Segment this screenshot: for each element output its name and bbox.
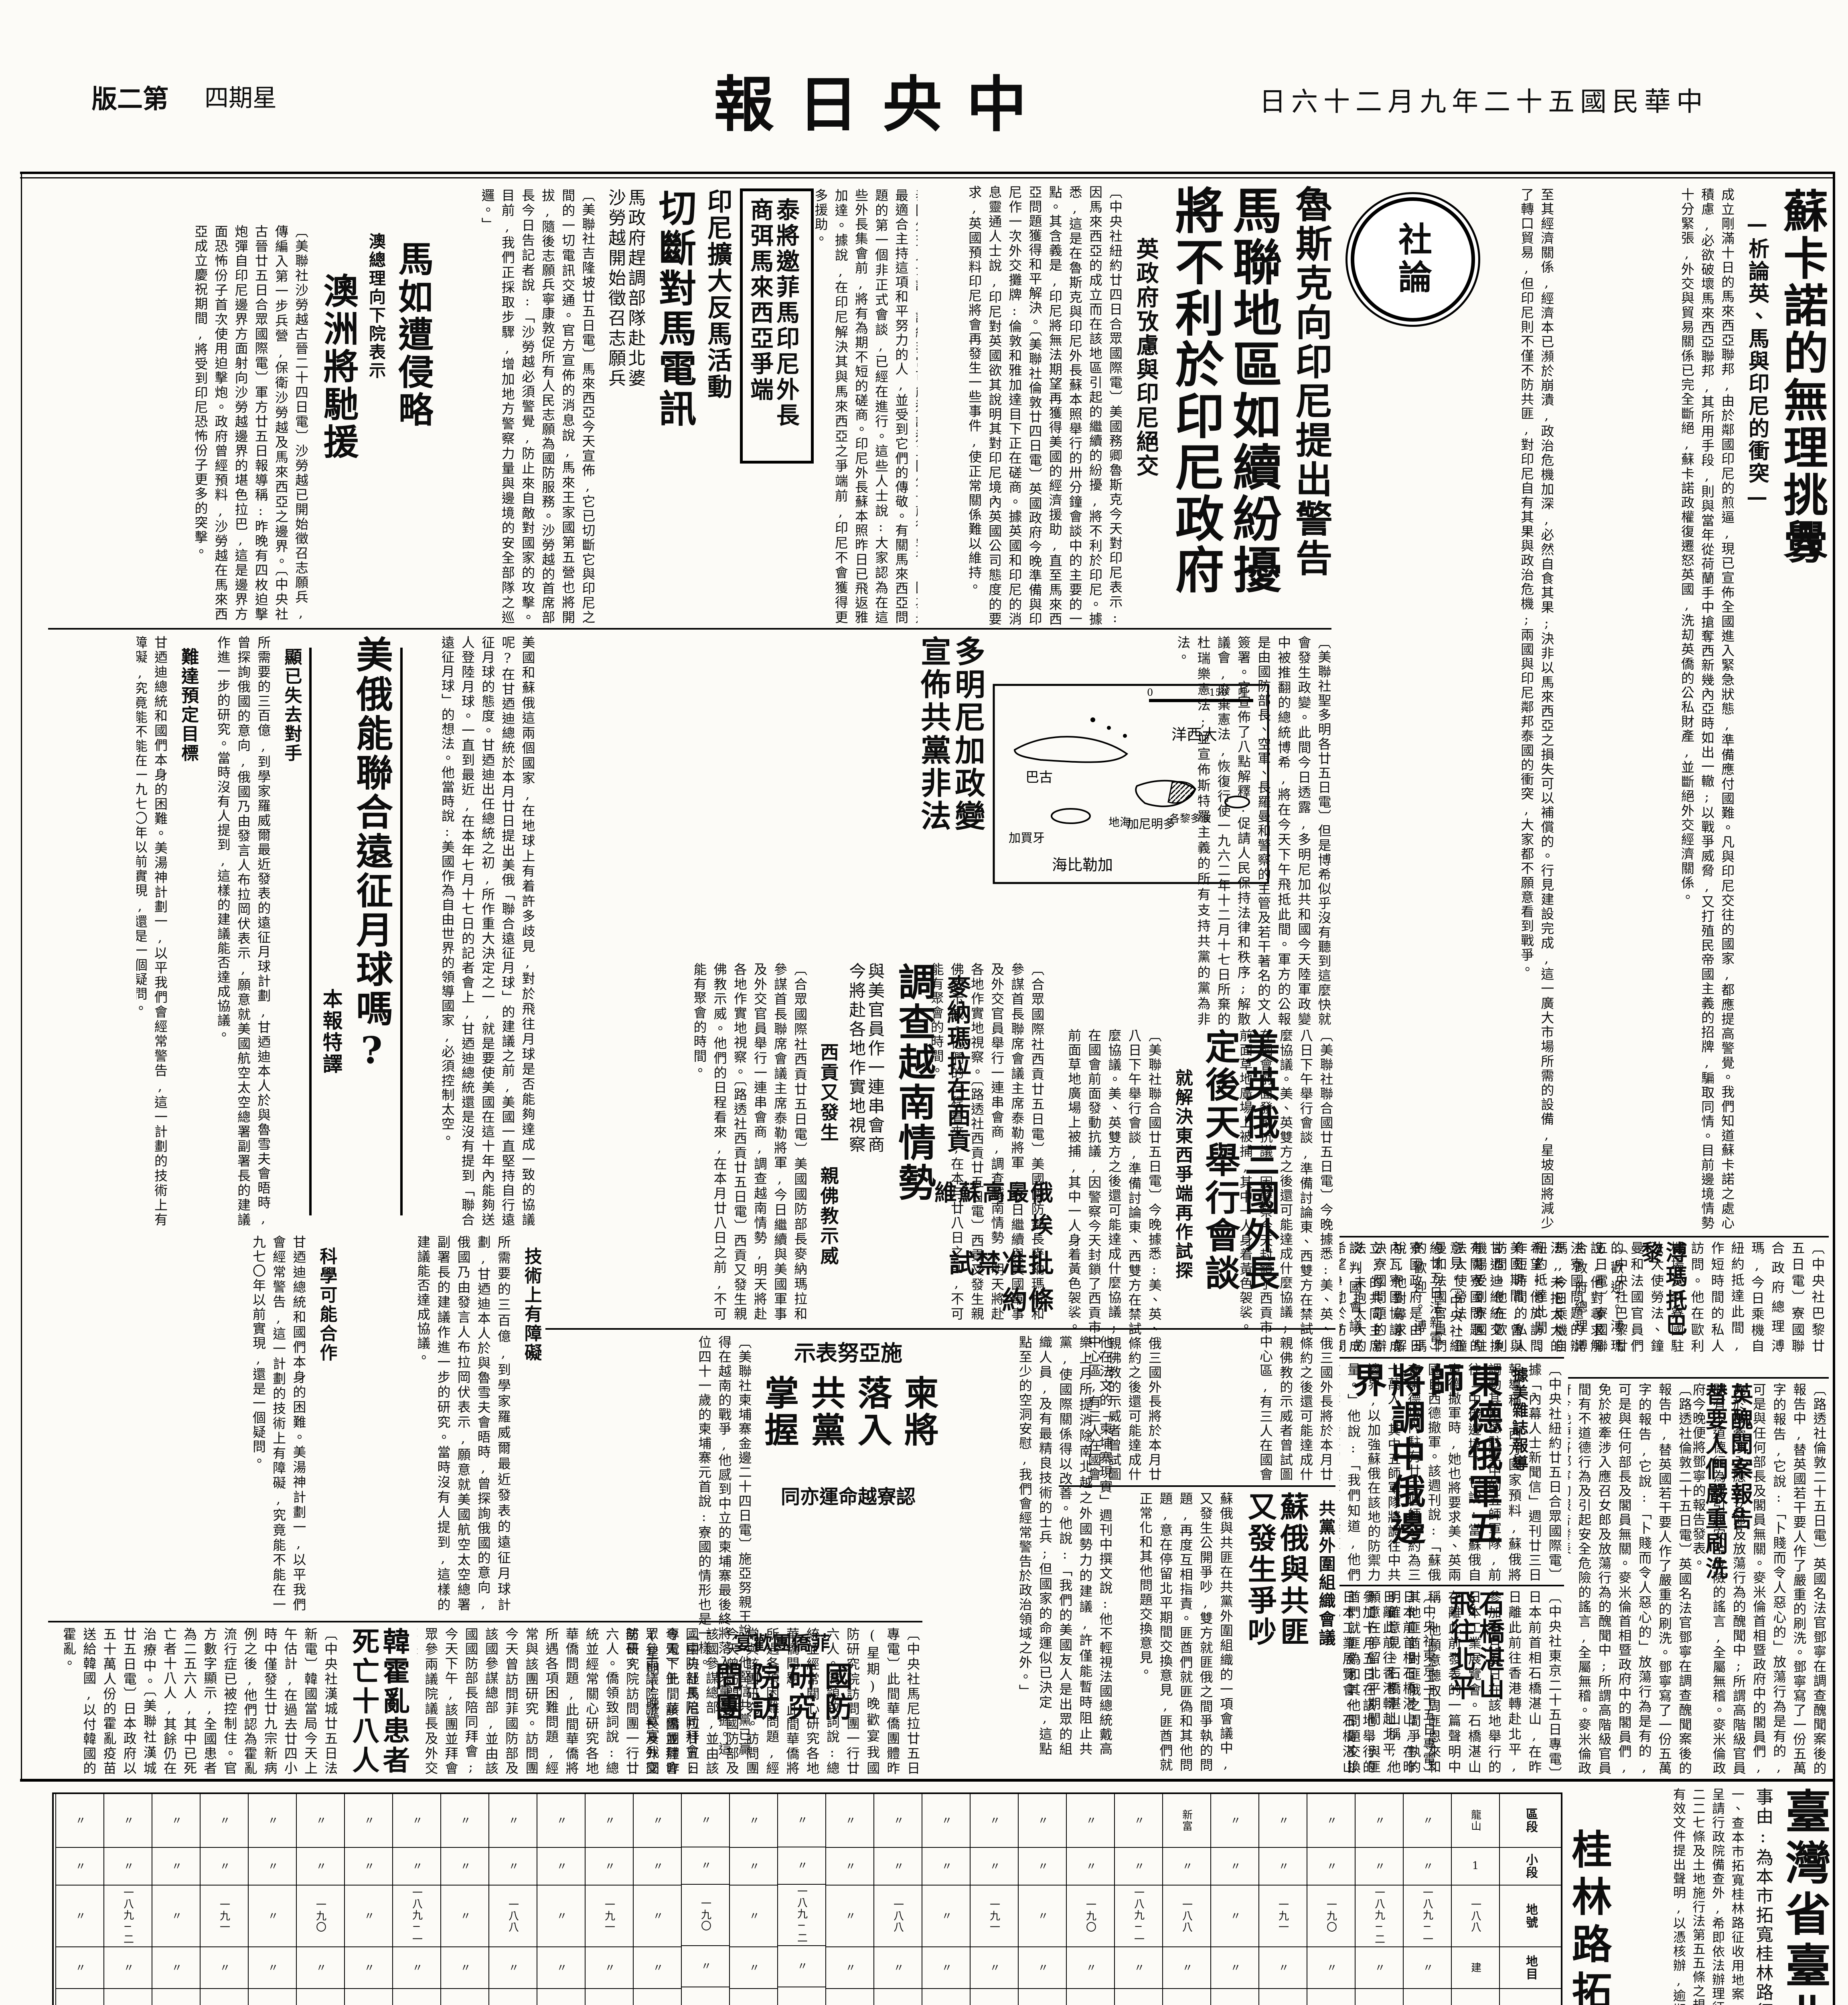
table-cell: 〃 (441, 1848, 488, 1886)
date-line: 中華民國五十二年九月二十六日 (1139, 80, 1708, 116)
table-cell: 〃 (1067, 1947, 1114, 1989)
table-cell: 〃 (634, 1794, 681, 1848)
table-cell: 〃 (489, 1947, 537, 1989)
table-cell: 〇・〇一九〇 (1259, 1989, 1307, 2005)
table-cell: 〇・〇〇二六 (1115, 1989, 1162, 2005)
table-cell: 〃 (778, 1987, 825, 2005)
table-cell: 〇・〇一九〇 (922, 1989, 970, 2005)
masthead-rule-top (20, 172, 1834, 174)
weekday-label: 星期四 (172, 79, 277, 115)
moon-subhead-2: 難達預定目標 (178, 636, 199, 1227)
table-cell: 〃 (152, 1794, 200, 1848)
article-eastger: 〔中央社紐約廿五日合眾國際電〕據「內幕人士新聞信」週刊廿三日報導稱,西方國家預料… (1339, 1363, 1564, 1582)
band-r-rule-4 (1568, 1377, 1829, 1379)
table-cell: 一八九─二 (104, 1886, 152, 1947)
table-cell: 〃 (537, 1794, 585, 1848)
article-aussie: 馬如遭侵略 澳總理向下院表示 澳洲將馳援 〔美聯社沙勞越古晉二十四日電〕沙勞越已… (48, 225, 433, 622)
table-cell: 〃 (1211, 1848, 1258, 1886)
land-table-title: 桂林路拓寬工程征收土地補償清冊 (1566, 1829, 1611, 2005)
table-cell: 〃 (489, 1848, 537, 1886)
table-cell: 〃 (971, 1848, 1018, 1886)
table-cell: 一八九─一 (1404, 1886, 1451, 1947)
table-cell: 〃 (297, 1989, 344, 2005)
moon-body-3: 甘迺迪總統和國們本身的困難。美湯神計劃一,以平我們會經常警告,這一計劃的技術上有… (136, 636, 170, 1227)
table-cell: 〃 (826, 1947, 873, 1989)
land-table-grid: 區段小段地號地目面積(甲)法定地價征收面積(公頃)折合坪數補償金額所有權人住址・… (52, 1792, 1562, 2005)
moon-subhead-3: 技術上有障礙 (521, 1235, 541, 1612)
table-cell: 〃 (104, 1794, 152, 1848)
table-cell: 〃 (874, 1848, 922, 1886)
table-cell: 一八九─一 (393, 1886, 440, 1947)
table-cell: 〇・〇〇三六 (1452, 1989, 1499, 2005)
article-phouma: 〔中央社巴黎廿五日電〕寮國聯合政府總理溥瑪,今日乘機自紐約抵達此間,作短時間的私… (1339, 1241, 1827, 1353)
editorial-badge-label: 社論 (1389, 222, 1437, 297)
sihanouk-subhead: 認寮越命運亦同 (781, 1481, 916, 1509)
map-label-dominican: 多明尼加 (1127, 817, 1175, 831)
moon-deco-rule-right (400, 648, 403, 1215)
eastger-body-lead: 〔中央社紐約廿五日合眾國際電〕據「內幕人士新聞信」週刊廿三日報導稱,西方國家預料… (1536, 1363, 1564, 1582)
table-cell: 〃 (730, 1848, 777, 1886)
table-cell: 〃 (1259, 1947, 1307, 1989)
band-r-rule-1 (1339, 1236, 1829, 1237)
rusk-headline: 魯斯克向印尼提出警告 (1290, 185, 1331, 626)
ministers-kicker: 就解決東西爭端再作試探 (1172, 1029, 1192, 1482)
table-record-column: 〃〃〃〃〇・〇〇八六一、九〇〇・〇〇〃〃一四、五二九・〇〇〃〃 (1018, 1794, 1066, 2005)
band-rule-1 (48, 628, 1331, 630)
table-record-column: 〃〃〃〃〇・〇〇三六〃〃〃六、〇〇八・三〇〃〃 (344, 1794, 392, 2005)
table-record-column: 〃〃〃〃〃〃〃〃〃〃〃 (1210, 1794, 1258, 2005)
band-r-rule-2 (1339, 1357, 1564, 1359)
article-moon-cont: 技術上有障礙 所需要的三百億,到學家羅威爾最近發表的遠征月球計劃,甘迺迪本人於與… (48, 1235, 541, 1612)
rusk-body: 〔中央社紐約廿四日合眾國際電〕美國務卿魯斯克今天對印尼表示:因馬來西亞的成立而在… (922, 185, 1125, 626)
article-sovtreaty: 俄最高蘇維埃 批准禁試條約 〔美聯社莫斯科廿五日電〕蘇俄最高蘇維埃今日批准部份禁… (934, 1175, 1055, 1321)
table-cell: 〃 (1211, 1794, 1258, 1848)
masthead-rule-bottom (20, 177, 1834, 178)
table-cell: 〃 (1067, 1848, 1114, 1886)
table-cell: 〃 (922, 1886, 970, 1947)
table-cell: 一八九─二 (778, 1885, 825, 1946)
table-record-column: 〃〃一八八〃〃二、五六〇・〇〇〇・〇〇〇四四二・一四七〃黃德桂林路二段 (873, 1794, 922, 2005)
table-cell: 〃 (1163, 1848, 1210, 1886)
table-record-column: 〃〃一九〇〃〃五六〇・〇〇〇・〇〇〇七八三・九〇〃童尾一九〇巷內 (296, 1794, 344, 2005)
article-editorial: 社論 蘇卡諾的無理挑釁 —析論英、馬與印尼的衝突— 成立剛滿十日的馬來西亞聯邦,… (1339, 188, 1827, 1230)
editorial-title: 蘇卡諾的無理挑釁 (1777, 188, 1827, 1230)
table-cell: 〃 (393, 1848, 440, 1886)
table-header-cell: 區段 (1500, 1794, 1561, 1848)
table-record-column: 〃〃〃〃〇・〇〇八六一、九〇〇・〇〇〃〃三、〇三〇・四〇〃〃 (152, 1794, 200, 2005)
table-cell: 〃 (393, 1794, 440, 1848)
table-header-column: 區段小段地號地目面積(甲)法定地價征收面積(公頃)折合坪數補償金額所有權人住址・… (1499, 1794, 1561, 2005)
table-cell: 〃 (104, 1848, 152, 1886)
aussie-headline-2: 澳洲將馳援 (319, 225, 359, 622)
left-edge-rule (21, 172, 22, 1780)
table-cell: 〃 (826, 1794, 873, 1848)
table-cell: 〃 (1356, 1947, 1403, 1989)
table-cell: 〃 (634, 1848, 681, 1886)
table-cell: 〃 (441, 1947, 488, 1989)
mcnamara-subheads: 與美官員作一連串會商 今將赴各地作實地視察 (847, 962, 885, 1321)
table-cell: 〃 (249, 1794, 296, 1848)
aussie-kicker: 澳總理向下院表示 (366, 225, 385, 622)
aussie-headline-1: 馬如遭侵略 (393, 225, 433, 622)
table-cell: 〃 (249, 1947, 296, 1989)
table-cell: 〃 (345, 1794, 392, 1848)
table-cell: 〃 (1356, 1848, 1403, 1886)
editorial-body: 成立剛滿十日的馬來西亞聯邦,由於鄰國印尼的煎逼,現已宣佈全國進入緊急狀態,準備應… (1564, 188, 1737, 1230)
table-cell: 〇・〇〇二六 (730, 1989, 777, 2005)
table-cell: 〇・〇〇八六 (634, 1989, 681, 2005)
ministers-body-lead: 〔美聯社聯合國廿五日電〕今晚據悉:美、英、俄三國外長將於本月廿八日下午舉行會談,… (1287, 1029, 1335, 1482)
table-cell: 〃 (345, 1848, 392, 1886)
table-cell: 〃 (1115, 1947, 1162, 1989)
moon-title: 美俄能聯合遠征月球嗎? (351, 636, 392, 1227)
article-thai-body: 泰國外交人士說:譚納非常可能邀請這三國外長前往曼谷,因為是最適合主持這項和平努力… (810, 188, 918, 625)
map-label-caribbean: 加勒比海 (1052, 856, 1113, 874)
table-cell: 〃 (971, 1989, 1018, 2005)
sovtreaty-headline-2: 批准禁試條約 (934, 1243, 1055, 1317)
mcnamara-subhead-2: 西貢又發生 親佛教示威 (818, 962, 839, 1321)
table-cell: 〃 (634, 1886, 681, 1947)
moon-cont-body: 所需要的三百億,到學家羅威爾最近發表的遠征月球計劃,甘迺迪本人於與魯雪夫會晤時,… (344, 1235, 513, 1612)
table-cell: 〃 (971, 1947, 1018, 1989)
table-cell: 〃 (297, 1794, 344, 1848)
table-cell: 〃 (297, 1947, 344, 1989)
indo-headline: 切斷對馬電訊 (653, 188, 695, 625)
moon-cont-body-2: 甘迺迪總統和國們本身的困難。美湯神計劃一,以平我們會經常警告,這一計劃的技術上有… (48, 1235, 308, 1612)
table-cell: 〃 (1019, 1794, 1066, 1848)
table-cell: 〃 (682, 1987, 729, 2005)
table-cell: 一八八 (874, 1886, 922, 1947)
table-cell: 〃 (152, 1886, 200, 1947)
table-cell: 〇・〇〇八六 (1356, 1989, 1403, 2005)
table-cell: 〃 (586, 1848, 633, 1886)
rusk-headline-main: 馬聯地區如續紛擾 將不利於印尼政府 (1167, 185, 1282, 626)
quarrel-body: 蘇俄與共匪在共黨外圍組織的一項會議中,又發生公開爭吵,雙方就匪俄之間爭執的問題,… (1059, 1492, 1235, 1772)
table-cell: 〃 (682, 1794, 729, 1847)
article-indo: 印尼擴大反馬活動 切斷對馬電訊 馬政府趕調部隊赴北婆 沙勞越開始徵召志願兵 〔美… (443, 188, 732, 625)
table-cell: 〃 (922, 1848, 970, 1886)
table-cell: 〇・〇〇八六 (1019, 1989, 1066, 2005)
table-cell: 〃 (1067, 1794, 1114, 1848)
table-record-column: 〃〃〃〃〇・〇一九〇〃〃〃三五、三〇二・四〇〃〃 (922, 1794, 970, 2005)
indo-body: 〔美聯社吉隆坡廿五日電〕馬來西亞今天宣佈,它已切斷它與印尼之間的一切電訊交通。官… (443, 188, 598, 625)
table-header-cell: 地目 (1500, 1947, 1561, 1989)
band-rule-4 (48, 1621, 922, 1622)
table-record-column: 〃〃一九一〃〇・〇一九〇二、五六〇・〇〇〃二・一四七六、〇〇八・三〇黃有信一九一… (1258, 1794, 1307, 2005)
moon-body: 美國和蘇俄這兩個國家,在地球上有着許多歧見,對於飛往月球是否能夠達成一致的協議呢… (411, 636, 538, 1227)
table-cell: 一九〇 (1307, 1886, 1355, 1947)
table-record-column: 〃〃一九一〃〃〃〇・〇〇〇四七八・三五〃黃德二三四號 (200, 1794, 248, 2005)
table-record-column: 新富〃一八八〃〇・〇〇三六〃〇・〇〇〇七八三・九〇六〇八・三〇黃宗獻一九〇巷內 (1162, 1794, 1210, 2005)
table-cell: 〃 (1404, 1947, 1451, 1989)
phouma-body-lead: 〔中央社巴黎廿五日電〕寮國聯合政府總理溥瑪,今日乘機自紐約抵達此間,作短時間的私… (1695, 1241, 1827, 1353)
table-cell: 〃 (1307, 1947, 1355, 1989)
table-cell: 〇・〇〇二六 (249, 1989, 296, 2005)
table-cell: 〃 (1115, 1794, 1162, 1848)
table-cell: 〃 (249, 1848, 296, 1886)
map-label-cuba: 古巴 (1025, 770, 1053, 786)
table-cell: 〃 (393, 1947, 440, 1989)
table-cell: 一九一 (1259, 1886, 1307, 1947)
table-cell: 〃 (1404, 1848, 1451, 1886)
table-cell: 一八九─一 (1115, 1886, 1162, 1947)
moon-subhead-1: 顯已失去對手 (281, 636, 302, 1227)
table-record-column: 〃〃一八九─二〃〃〃〇・〇〇〇七八三・九〇〃〃28.5坪房屋全部 (777, 1794, 825, 2005)
table-cell: 〃 (537, 1886, 585, 1947)
table-record-column: 〃〃〃〃〇・〇〇三六〃〃〃六、〇〇八・三〇〃〃 (825, 1794, 873, 2005)
sovtreaty-headline-1: 俄最高蘇維埃 (934, 1175, 1055, 1240)
table-cell: 〃 (682, 1946, 729, 1987)
table-cell: 〃 (586, 1947, 633, 1989)
rusk-subhead: 英政府攷慮與印尼絕交 (1133, 185, 1159, 626)
map-jamaica-shape (1052, 809, 1090, 823)
table-cell: 〃 (56, 1848, 103, 1886)
table-cell: 〃 (682, 1847, 729, 1885)
table-cell: 〃 (537, 1848, 585, 1886)
table-cell: 〃 (1356, 1794, 1403, 1848)
table-cell: 一八八 (1163, 1886, 1210, 1947)
table-cell: 〃 (922, 1794, 970, 1848)
table-record-column: 〃〃〃〃〇・〇〇二六五六〇・〇〇〃〃六〇八・三〇黃有信〃 (729, 1794, 777, 2005)
table-cell: 一八八 (1452, 1886, 1499, 1947)
table-cell: 〇・〇〇八六 (152, 1989, 200, 2005)
edition-label: 第二版 (48, 79, 168, 115)
table-cell: 〃 (1163, 1947, 1210, 1989)
table-cell: 一九〇 (297, 1886, 344, 1947)
table-cell: 〃 (922, 1947, 970, 1989)
table-cell: 〃 (393, 1989, 440, 2005)
table-record-column: 〃〃一九一〃〃〃〇・〇〇二七八一五・七九〃童尾萬大路四二號 (970, 1794, 1018, 2005)
table-record-column: 〃〃一九一〃〃一、九〇〇・〇〇〇・〇〇二七八八・三五〃黃宗獻中正路一七二號 (585, 1794, 633, 2005)
right-edge-rule (1833, 172, 1835, 2005)
table-cell: 〃 (1019, 1947, 1066, 1989)
article-scandal: 〔路透社倫敦二十五日電〕英國名法官鄧寧在調查醜聞案後的報告中,替英國若干要人作了… (1568, 1383, 1829, 1776)
table-cell: 龍山 (1452, 1794, 1499, 1848)
announcement-body: 一、查本市拓寬桂林路征收用地案,經呈奉臺灣省政府(52)8.9府民地丁字第五九七… (1636, 1788, 1747, 2005)
cholera-headline: 韓霍亂患者 死亡十八人 (348, 1627, 409, 1776)
table-cell: 〃 (1211, 1886, 1258, 1947)
table-cell: 〃 (1211, 1989, 1258, 2005)
table-cell: 〃 (152, 1848, 200, 1886)
table-cell: 〃 (249, 1886, 296, 1947)
table-cell: 〃 (1307, 1989, 1355, 2005)
scandal-body-lead: 〔路透社倫敦二十五日電〕英國名法官鄧寧在調查醜聞案後的報告中,替英國若干要人作了… (1761, 1383, 1829, 1776)
article-cholera: 韓霍亂患者 死亡十八人 〔中央社漢城廿五日法新電〕韓國當局今天上午估計,在過去廿… (48, 1627, 409, 1776)
thai-body: 泰國外交人士說:譚納非常可能邀請這三國外長前往曼谷,因為是最適合主持這項和平努力… (810, 188, 918, 625)
table-cell: 一九〇 (682, 1885, 729, 1946)
table-record-column: 龍山1一八八建〇・〇〇三六五六〇・〇〇〇・〇〇〇七八二・三六四七六〇八・三〇童尾… (1451, 1794, 1499, 2005)
table-record-column: 〃〃一八九─二〃〃〃〇・〇〇二七八一五・七九一四、五二九・〇〇黃有信萬大路四二號 (103, 1794, 152, 2005)
article-rusk: 魯斯克向印尼提出警告 馬聯地區如續紛擾 將不利於印尼政府 英政府攷慮與印尼絕交 … (922, 185, 1331, 626)
table-cell: 〃 (201, 1794, 248, 1848)
indo-subheads: 馬政府趕調部隊赴北婆 沙勞越開始徵召志願兵 (606, 188, 645, 625)
table-cell: 〇・〇一九〇 (56, 1989, 103, 2005)
table-record-column: 〃〃一八九─一〃〇・〇〇二六〃〇・〇〇〇四七三・九〇三、〇三〇・四〇〃〃 (1403, 1794, 1451, 2005)
table-cell: 一八九─二 (1356, 1886, 1403, 1947)
table-cell: 1 (1452, 1848, 1499, 1886)
table-cell: 〃 (586, 1989, 633, 2005)
table-cell: 〃 (441, 1886, 488, 1947)
table-cell: 〃 (1211, 1947, 1258, 1989)
land-table-title-block: 桂林路拓寬工程征收土地補償清冊 (1566, 1829, 1630, 2005)
table-cell: 〃 (730, 1794, 777, 1848)
table-record-column: 〃〃一九〇〃〃〃〇・〇〇〇四四一五・七九三五、三〇二・四〇〃〃 (1307, 1794, 1355, 2005)
newspaper-page: 第二版 星期四 中央日報 中華民國五十二年九月二十六日 社論 蘇卡諾的無理挑釁 … (0, 0, 1848, 2005)
table-cell: 〃 (586, 1794, 633, 1848)
table-header-cell: 小段 (1500, 1848, 1561, 1886)
table-cell: 新富 (1163, 1794, 1210, 1848)
table-cell: 〃 (826, 1848, 873, 1886)
announcement-subject: 事由:為本市拓寬桂林路征收用地案特此公告由。 (1753, 1788, 1773, 2005)
table-cell: 〃 (1019, 1848, 1066, 1886)
table-section-rule (20, 1779, 1834, 1782)
table-cell: 〃 (874, 1989, 922, 2005)
quarrel-headline: 蘇俄與共匪 又發生爭吵 (1243, 1492, 1308, 1772)
table-cell: 〇・〇〇二六 (1404, 1989, 1451, 2005)
table-record-column: 〃〃〃〃〇・〇〇二六〃〃〃六〇八・三〇〃〃 (248, 1794, 296, 2005)
table-record-column: 〃〃一八九─二〃〇・〇〇八六一、九〇〇・〇〇〇・〇〇二七八八・三五一四、五二九・… (1355, 1794, 1403, 2005)
table-cell: 〃 (537, 1989, 585, 2005)
announcement-title: 臺灣省臺北市政府公告 (1778, 1788, 1830, 2005)
moon-kicker: 本報特譯 (320, 636, 343, 1227)
thai-headline: 泰將邀菲馬印尼外長 商弭馬來西亞爭端 (747, 198, 799, 454)
table-cell: 〃 (730, 1886, 777, 1947)
table-cell: 〃 (1307, 1794, 1355, 1848)
table-cell: 〃 (1115, 1848, 1162, 1886)
cholera-body: 〔中央社漢城廿五日法新電〕韓國當局今天上午估計,在過去廿四小時中僅發生廿九宗新病… (48, 1627, 340, 1776)
table-cell: 一九一 (971, 1886, 1018, 1947)
quarrel-kicker: 共黨外圍組織會議 (1316, 1492, 1335, 1772)
table-record-column: 〃〃一八九─一〃〃〃〃二・一四七〃〃〃 (392, 1794, 440, 2005)
table-cell: 一九一 (201, 1886, 248, 1947)
paper-title: 中央日報 (682, 56, 1083, 132)
editorial-body-2: 至其經濟關係,經濟本已瀕於崩潰,政治危機加深,必然自食其果;決非以馬來西亞之損失… (1339, 188, 1556, 1230)
table-cell: 〃 (201, 1989, 248, 2005)
article-quarrel: 共黨外圍組織會議 蘇俄與共匪 又發生爭吵 蘇俄與共匪在共黨外圍組織的一項會議中,… (1059, 1492, 1335, 1772)
table-header-cell: 面積(甲) (1500, 1989, 1561, 2005)
table-cell: 〃 (778, 1847, 825, 1885)
band-rule-2 (545, 1328, 1335, 1330)
map-scale-zero: 0 (1147, 687, 1153, 698)
table-cell: 〃 (1019, 1886, 1066, 1947)
table-cell: 〃 (778, 1794, 825, 1847)
mcnamara-body: 〔合眾國際社西貢廿五日電〕美國國防部長麥納瑪拉和參謀首長聯席會議主席泰勒將軍,今… (541, 962, 810, 1321)
table-cell: 〃 (152, 1947, 200, 1989)
table-cell: 〃 (56, 1947, 103, 1989)
table-cell: 〃 (874, 1947, 922, 1989)
moon-body-2: 所需要的三百億,到學家羅威爾最近發表的遠征月球計劃,甘迺迪本人於與魯雪夫會晤時,… (206, 636, 273, 1227)
table-cell: 〃 (1259, 1848, 1307, 1886)
table-record-column: 〃〃〃〃〇・〇一九〇〃〃〃〃〃〃 (55, 1794, 103, 2005)
table-cell: 〃 (345, 1947, 392, 1989)
table-header-cell: 地號 (1500, 1886, 1561, 1947)
sihanouk-headline: 柬將 落入 共黨 掌握 (755, 1375, 941, 1471)
map-cuba-shape (1015, 737, 1127, 762)
table-cell: 〃 (730, 1947, 777, 1989)
band-rule-3 (1059, 1485, 1335, 1487)
announcement-block: 臺灣省臺北市政府公告 事由:為本市拓寬桂林路征收用地案特此公告由。 一、查本市拓… (1636, 1788, 1830, 2005)
editorial-badge: 社論 (1351, 197, 1475, 322)
article-phil: 〔中央社馬尼拉廿五日專電〕此間華僑團體昨(星期)晚歡宴我國防研究院訪問團一行廿六… (417, 1627, 922, 1776)
table-cell: 〃 (537, 1947, 585, 1989)
indo-kicker: 印尼擴大反馬活動 (703, 188, 732, 625)
table-cell: 〃 (1259, 1794, 1307, 1848)
table-cell: 〃 (441, 1989, 488, 2005)
ishibashi-body-lead: 〔中央社東京二十五日專電〕日本前首相石橋湛山,在昨日離此前往香港轉赴北平,參加十… (1512, 1590, 1564, 1774)
table-cell: 〃 (489, 1794, 537, 1848)
table-record-column: 〃〃一九〇〃〃〃〇・〇〇〇四七二・三六四七〃〃23.5坪房屋全部 (681, 1794, 729, 2005)
table-cell: 〃 (104, 1989, 152, 2005)
editorial-subtitle: —析論英、馬與印尼的衝突— (1745, 188, 1769, 1230)
table-cell: 建 (1452, 1947, 1499, 1989)
scandal-body: 〔路透社倫敦二十五日電〕英國名法官鄧寧在調查醜聞案後的報告中,替英國若干要人作了… (1568, 1383, 1694, 1776)
article-thai-headline-box: 泰將邀菲馬印尼外長 商弭馬來西亞爭端 (740, 188, 814, 464)
table-cell: 〇・〇〇三六 (345, 1989, 392, 2005)
table-cell: 〃 (971, 1794, 1018, 1848)
table-cell: 一九〇 (1067, 1886, 1114, 1947)
table-cell: 〃 (104, 1947, 152, 1989)
table-cell: 〇・〇一九〇 (489, 1989, 537, 2005)
table-cell: 〇・〇〇三六 (1163, 1989, 1210, 2005)
table-cell: 〃 (1067, 1989, 1114, 2005)
aussie-body: 〔美聯社沙勞越古晉二十四日電〕沙勞越已開始徵召志願兵,傳編入第一步兵營,保衛沙勞… (48, 225, 311, 622)
table-cell: 〃 (826, 1886, 873, 1947)
table-cell: 一八八 (489, 1886, 537, 1947)
table-cell: 〃 (345, 1886, 392, 1947)
band-r-rule-3 (1339, 1585, 1564, 1586)
dominican-body-lead: 〔美聯社聖多明各廿五日電〕但是博希似乎沒有聽到這麼快就會發生政變。此間今日透露,… (1277, 636, 1333, 1027)
moon-subhead-4: 科學可能合作 (316, 1235, 337, 1612)
article-moon: 美國和蘇俄這兩個國家,在地球上有着許多歧見,對於飛往月球是否能夠達成一致的協議呢… (136, 636, 537, 1227)
article-ishibashi: 〔中央社東京二十五日專電〕日本前首相石橋湛山,在昨日離此前往香港轉赴北平,參加十… (1339, 1590, 1564, 1774)
table-cell: 〃 (1404, 1794, 1451, 1848)
table-record-column: 〃〃一八八〃〇・〇一九〇〃〃一五・七九〃〃〃 (488, 1794, 537, 2005)
sihanouk-kicker: 施亞努表示 (794, 1335, 902, 1367)
map-dominican-hatch (1168, 782, 1196, 803)
moon-deco-rule-left (309, 648, 312, 1215)
table-cell: 〃 (201, 1848, 248, 1886)
table-cell: 〃 (441, 1794, 488, 1848)
table-record-column: 〃〃一九〇〃〃〃〇・〇〇〇四七八・三五〃〃二三四號 (1066, 1794, 1114, 2005)
table-record-column: 〃〃一八九─一〃〇・〇〇二六五六〇・〇〇〃二・三六四七三、〇三〇・四〇黃宗輝〃 (1114, 1794, 1162, 2005)
table-record-column: 〃〃〃〃〃二、五六〇・〇〇〇・〇〇〇四四〃三五、三〇二・四〇黃宗輝一九一號 (440, 1794, 488, 2005)
map-label-jamaica: 牙買加 (1009, 831, 1045, 845)
table-cell: 〃 (778, 1946, 825, 1987)
table-record-column: 〃〃〃〃〇・〇〇八六〃〃〃三、〇三〇・四〇〃〃 (633, 1794, 681, 2005)
table-cell: 〃 (634, 1947, 681, 1989)
table-record-column: 〃〃〃〃〃〃〃〃一四、五二九・〇〇〃〃 (537, 1794, 585, 2005)
table-cell: 〃 (201, 1947, 248, 1989)
table-cell: 〇・〇〇三六 (826, 1989, 873, 2005)
phil-body-lead: 〔中央社馬尼拉廿五日專電〕此間華僑團體昨(星期)晚歡宴我國防研究院訪問團一行廿六… (862, 1627, 922, 1776)
table-cell: 〃 (1307, 1848, 1355, 1886)
table-cell: 〃 (874, 1794, 922, 1848)
table-cell: 〃 (56, 1886, 103, 1947)
table-cell: 一九一 (586, 1886, 633, 1947)
table-cell: 〃 (297, 1848, 344, 1886)
table-cell: 〃 (56, 1794, 103, 1848)
